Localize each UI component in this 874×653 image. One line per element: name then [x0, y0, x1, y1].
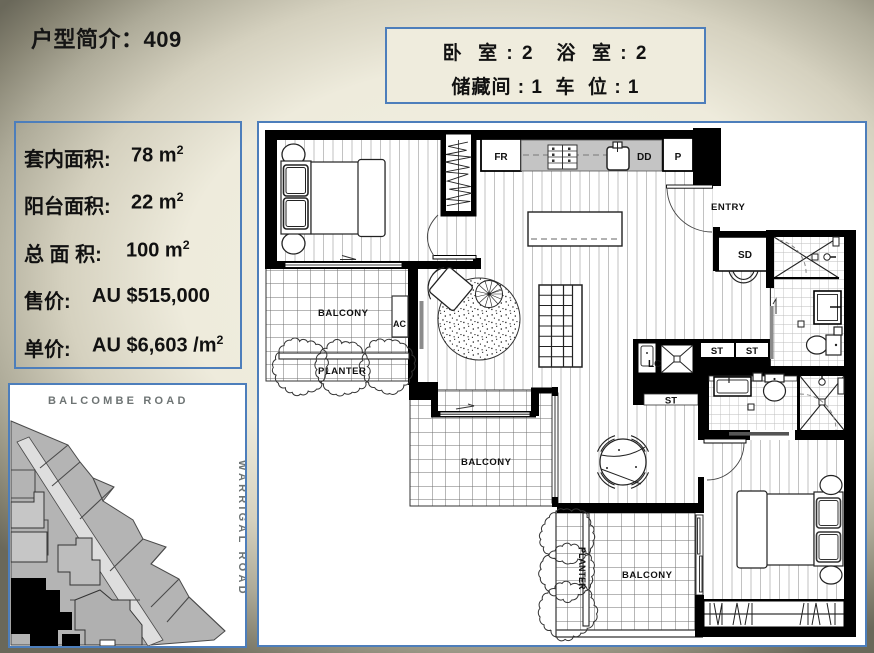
svg-text:ST: ST [711, 346, 723, 357]
svg-text:BALCOMBE ROAD: BALCOMBE ROAD [48, 395, 189, 407]
svg-text:WARRIGAL ROAD: WARRIGAL ROAD [236, 460, 245, 597]
svg-text:DD: DD [637, 152, 651, 163]
svg-text:SD: SD [738, 250, 752, 261]
svg-text:P: P [675, 152, 682, 163]
svg-text:ST: ST [746, 346, 758, 357]
svg-text:BALCONY: BALCONY [318, 308, 369, 319]
svg-text:PLANTER: PLANTER [318, 366, 366, 377]
svg-text:FR: FR [494, 152, 508, 163]
svg-text:ST: ST [665, 396, 677, 407]
svg-text:ENTRY: ENTRY [711, 202, 746, 213]
svg-text:LC: LC [648, 359, 661, 370]
svg-text:PLANTER: PLANTER [577, 547, 587, 590]
svg-text:BALCONY: BALCONY [461, 457, 512, 468]
svg-text:BALCONY: BALCONY [622, 570, 673, 581]
svg-text:AC: AC [393, 319, 406, 329]
